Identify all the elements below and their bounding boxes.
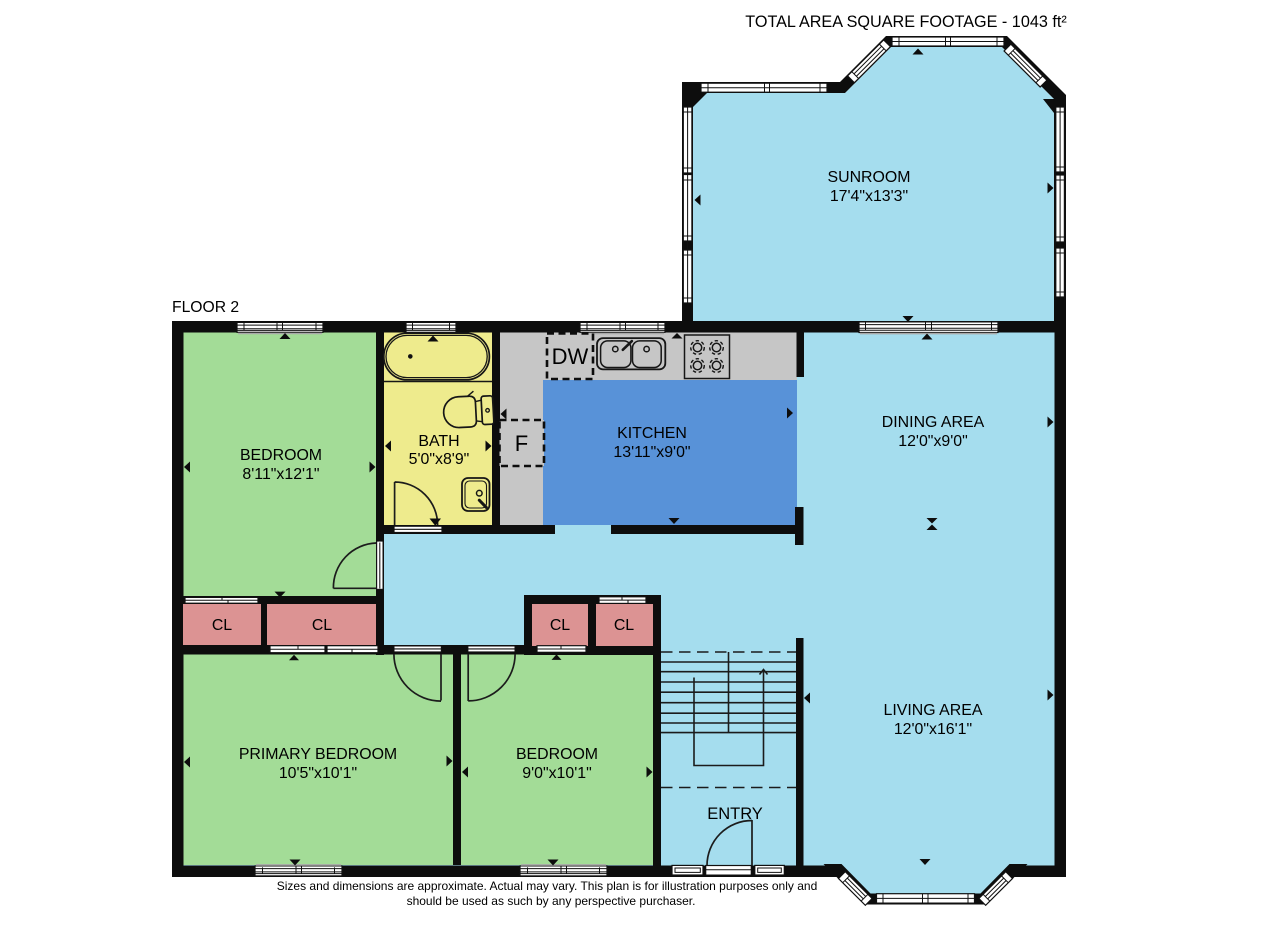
svg-text:ENTRY: ENTRY: [707, 805, 763, 823]
svg-text:PRIMARY BEDROOM: PRIMARY BEDROOM: [239, 746, 397, 763]
svg-text:should be used as such by any: should be used as such by any perspectiv…: [407, 894, 696, 908]
svg-text:CL: CL: [212, 617, 232, 634]
svg-text:CL: CL: [312, 617, 332, 634]
svg-text:CL: CL: [614, 617, 634, 634]
svg-text:BEDROOM: BEDROOM: [240, 447, 322, 464]
svg-text:Sizes and dimensions are appro: Sizes and dimensions are approximate. Ac…: [277, 879, 818, 893]
svg-text:8'11"x12'1": 8'11"x12'1": [242, 466, 319, 483]
svg-text:TOTAL AREA SQUARE FOOTAGE - 10: TOTAL AREA SQUARE FOOTAGE - 1043 ft²: [745, 13, 1067, 31]
svg-text:F: F: [515, 431, 528, 456]
svg-text:5'0"x8'9": 5'0"x8'9": [409, 451, 470, 468]
svg-text:SUNROOM: SUNROOM: [828, 169, 911, 186]
svg-text:BATH: BATH: [418, 433, 459, 450]
svg-text:17'4"x13'3": 17'4"x13'3": [830, 188, 908, 205]
svg-text:LIVING AREA: LIVING AREA: [884, 702, 983, 719]
svg-text:12'0"x9'0": 12'0"x9'0": [898, 433, 967, 450]
svg-text:12'0"x16'1": 12'0"x16'1": [894, 721, 972, 738]
svg-text:DINING AREA: DINING AREA: [882, 414, 985, 431]
svg-text:9'0"x10'1": 9'0"x10'1": [522, 765, 591, 782]
svg-text:DW: DW: [552, 344, 589, 369]
svg-text:13'11"x9'0": 13'11"x9'0": [613, 444, 690, 461]
svg-text:BEDROOM: BEDROOM: [516, 746, 598, 763]
svg-text:10'5"x10'1": 10'5"x10'1": [279, 765, 357, 782]
svg-text:CL: CL: [550, 617, 570, 634]
svg-text:FLOOR 2: FLOOR 2: [172, 299, 239, 316]
svg-text:KITCHEN: KITCHEN: [617, 425, 687, 442]
